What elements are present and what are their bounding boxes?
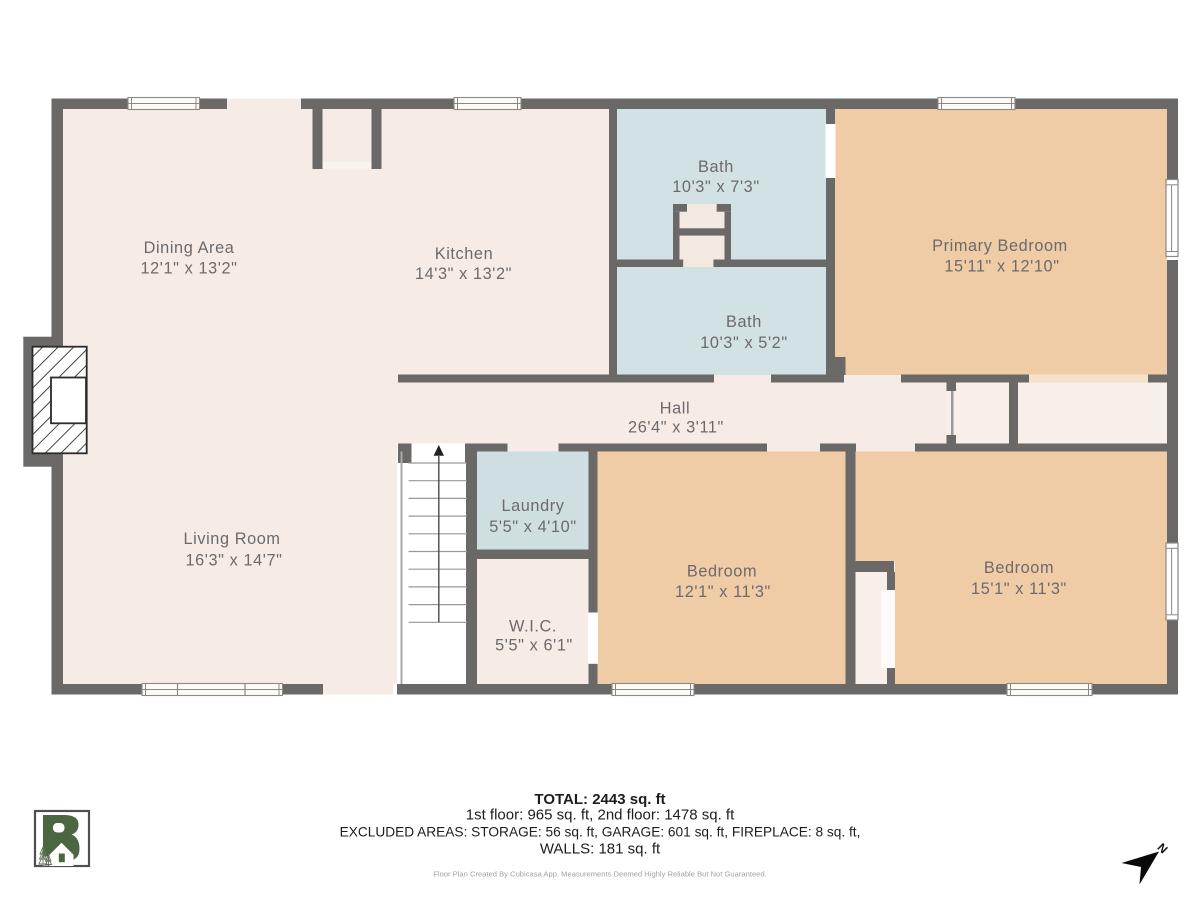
svg-text:Kitchen: Kitchen [435,245,494,263]
svg-text:15'11" x 12'10": 15'11" x 12'10" [944,258,1059,276]
svg-text:Bath: Bath [698,158,734,176]
svg-text:TOTAL: 2443 sq. ft: TOTAL: 2443 sq. ft [534,791,665,808]
svg-text:16'3" x 14'7": 16'3" x 14'7" [185,552,282,570]
svg-text:5'5" x 4'10": 5'5" x 4'10" [489,518,576,536]
svg-text:Floor Plan Created By Cubicasa: Floor Plan Created By Cubicasa App. Meas… [433,870,766,879]
svg-text:Bath: Bath [726,313,762,331]
svg-text:Laundry: Laundry [501,497,564,515]
svg-text:Primary Bedroom: Primary Bedroom [932,237,1068,255]
svg-text:Bedroom: Bedroom [984,559,1054,577]
svg-text:10'3" x 7'3": 10'3" x 7'3" [672,178,759,196]
svg-text:14'3" x 13'2": 14'3" x 13'2" [415,265,512,283]
svg-text:10'3" x 5'2": 10'3" x 5'2" [700,334,787,352]
svg-text:W.I.C.: W.I.C. [509,618,557,636]
svg-text:15'1" x 11'3": 15'1" x 11'3" [971,580,1067,598]
svg-text:WALLS: 181 sq. ft: WALLS: 181 sq. ft [540,841,661,858]
svg-text:26'4" x 3'11": 26'4" x 3'11" [628,419,724,437]
svg-text:EXCLUDED AREAS: STORAGE: 56 sq: EXCLUDED AREAS: STORAGE: 56 sq. ft, GARA… [340,825,861,840]
svg-text:Living Room: Living Room [183,530,280,548]
svg-text:Dining Area: Dining Area [144,239,235,257]
svg-text:12'1" x 11'3": 12'1" x 11'3" [675,583,771,601]
svg-text:1st floor: 965 sq. ft, 2nd flo: 1st floor: 965 sq. ft, 2nd floor: 1478 s… [466,807,735,824]
svg-text:Hall: Hall [660,400,690,418]
svg-text:12'1" x 13'2": 12'1" x 13'2" [140,260,237,278]
svg-text:5'5" x 6'1": 5'5" x 6'1" [495,637,573,655]
svg-text:Bedroom: Bedroom [687,563,757,581]
